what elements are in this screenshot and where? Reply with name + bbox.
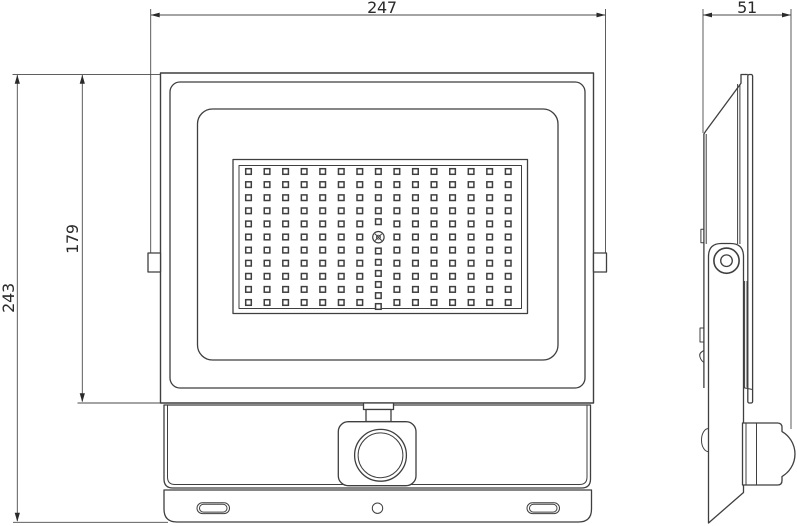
led-chip xyxy=(357,300,363,306)
led-chip xyxy=(264,287,270,293)
led-chip xyxy=(468,182,474,188)
led-chip xyxy=(487,234,493,240)
led-chip xyxy=(283,287,289,293)
led-chip xyxy=(320,182,326,188)
led-chip xyxy=(450,169,456,175)
arrowhead-bottom xyxy=(15,513,20,522)
sensor-stem-upper xyxy=(364,403,394,410)
floodlight-dimension-drawing: 247 51 243 179 xyxy=(0,0,797,526)
led-chip xyxy=(394,234,400,240)
led-chip xyxy=(338,300,344,306)
led-chip xyxy=(338,247,344,253)
arrowhead-bottom xyxy=(80,393,85,402)
led-chip xyxy=(246,221,252,227)
led-chip xyxy=(450,274,456,280)
led-chip xyxy=(413,169,419,175)
led-chip xyxy=(487,208,493,214)
led-chip xyxy=(246,260,252,266)
led-chip xyxy=(338,169,344,175)
led-chip xyxy=(246,195,252,201)
led-chip xyxy=(450,247,456,253)
led-chip xyxy=(320,208,326,214)
led-chip xyxy=(264,169,270,175)
led-chip xyxy=(431,169,437,175)
led-chip xyxy=(301,300,307,306)
led-chip xyxy=(320,287,326,293)
led-chip xyxy=(468,208,474,214)
led-chip xyxy=(338,274,344,280)
led-chip xyxy=(468,169,474,175)
led-chip xyxy=(301,182,307,188)
led-chip xyxy=(394,287,400,293)
led-chip xyxy=(505,221,511,227)
led-chip xyxy=(320,260,326,266)
led-chip xyxy=(413,234,419,240)
led-chip xyxy=(338,195,344,201)
led-chip xyxy=(320,221,326,227)
led-chip xyxy=(283,300,289,306)
led-chip xyxy=(246,300,252,306)
led-chip xyxy=(357,274,363,280)
led-chip xyxy=(413,287,419,293)
led-chip xyxy=(413,247,419,253)
led-chip xyxy=(338,260,344,266)
led-chip xyxy=(505,182,511,188)
dim-front-width-label: 247 xyxy=(367,0,397,17)
led-chip xyxy=(357,195,363,201)
led-chip xyxy=(376,271,382,277)
led-chip xyxy=(357,169,363,175)
led-chip xyxy=(487,274,493,280)
led-chip xyxy=(264,234,270,240)
led-chip xyxy=(283,234,289,240)
led-chip xyxy=(394,260,400,266)
led-chip xyxy=(283,274,289,280)
led-chip xyxy=(394,195,400,201)
led-chip xyxy=(450,260,456,266)
led-chip xyxy=(413,195,419,201)
led-chip xyxy=(450,195,456,201)
led-chip xyxy=(246,287,252,293)
sensor-stem-lower xyxy=(366,410,391,422)
led-chip xyxy=(431,260,437,266)
led-chip xyxy=(450,300,456,306)
led-chip xyxy=(301,208,307,214)
side-bracket-arm xyxy=(709,244,744,524)
led-chip xyxy=(264,182,270,188)
led-chip xyxy=(357,221,363,227)
side-view xyxy=(700,75,795,524)
led-chip xyxy=(338,182,344,188)
led-chip xyxy=(487,169,493,175)
led-chip xyxy=(413,208,419,214)
led-chip xyxy=(357,182,363,188)
led-chip xyxy=(338,287,344,293)
led-chip xyxy=(431,247,437,253)
mounting-slot-right-inner xyxy=(530,504,558,512)
led-chip xyxy=(283,169,289,175)
dim-total-height-label: 243 xyxy=(0,283,18,313)
led-chip xyxy=(357,234,363,240)
led-chip xyxy=(246,234,252,240)
led-chip xyxy=(301,221,307,227)
led-chip xyxy=(431,287,437,293)
led-chip xyxy=(450,287,456,293)
led-chip xyxy=(468,195,474,201)
led-chip xyxy=(505,195,511,201)
led-chip xyxy=(283,195,289,201)
led-chip xyxy=(338,221,344,227)
led-chip xyxy=(301,234,307,240)
led-chip xyxy=(264,195,270,201)
led-chip xyxy=(431,208,437,214)
led-chip xyxy=(413,260,419,266)
arrowhead-left xyxy=(703,13,712,18)
led-chip xyxy=(394,208,400,214)
led-chip xyxy=(431,300,437,306)
led-chip xyxy=(246,208,252,214)
led-chip xyxy=(413,300,419,306)
led-chip xyxy=(357,208,363,214)
led-chip xyxy=(431,234,437,240)
led-chip xyxy=(264,208,270,214)
led-chip xyxy=(487,287,493,293)
dim-side-depth-label: 51 xyxy=(737,0,757,17)
led-chip xyxy=(487,247,493,253)
front-view xyxy=(148,73,607,522)
mounting-hole-center xyxy=(372,503,382,513)
led-chip xyxy=(283,247,289,253)
led-chip xyxy=(394,169,400,175)
led-chip xyxy=(376,208,382,214)
led-chip xyxy=(505,234,511,240)
led-chip xyxy=(283,182,289,188)
led-chip xyxy=(450,182,456,188)
led-chip xyxy=(264,221,270,227)
hinge-tab-left xyxy=(148,253,161,272)
led-chip xyxy=(431,182,437,188)
arrowhead-right xyxy=(782,13,791,18)
led-chip xyxy=(376,195,382,201)
led-chip xyxy=(264,274,270,280)
led-chip xyxy=(301,287,307,293)
led-chip xyxy=(376,260,382,266)
side-glass-strip xyxy=(748,75,753,404)
dimension-body-height: 179 xyxy=(63,75,161,403)
led-chip xyxy=(376,182,382,188)
led-chip xyxy=(376,219,382,225)
led-chip xyxy=(505,247,511,253)
led-chip xyxy=(431,195,437,201)
arrowhead-right xyxy=(597,13,606,18)
led-chip xyxy=(283,221,289,227)
led-chip xyxy=(264,247,270,253)
technical-drawing-page: 247 51 243 179 xyxy=(0,0,797,526)
led-chip xyxy=(320,274,326,280)
led-chip xyxy=(468,287,474,293)
led-chip xyxy=(468,260,474,266)
led-chip xyxy=(394,221,400,227)
side-frame-edges xyxy=(738,84,740,244)
led-chip xyxy=(413,221,419,227)
led-chip xyxy=(246,274,252,280)
led-chip xyxy=(413,182,419,188)
led-chip xyxy=(246,169,252,175)
led-chip xyxy=(468,221,474,227)
dimension-total-height: 243 xyxy=(0,75,168,523)
led-chip xyxy=(394,182,400,188)
led-chip xyxy=(301,274,307,280)
led-chip xyxy=(505,274,511,280)
mounting-slot-left-inner xyxy=(200,504,228,512)
led-chip xyxy=(301,247,307,253)
side-sensor-housing xyxy=(743,423,795,485)
led-chip xyxy=(246,247,252,253)
led-chip xyxy=(450,234,456,240)
led-chip xyxy=(450,221,456,227)
led-chip xyxy=(376,169,382,175)
led-chip xyxy=(264,300,270,306)
sensor-housing xyxy=(338,422,416,486)
led-chip xyxy=(246,182,252,188)
led-chip xyxy=(505,260,511,266)
led-chip xyxy=(468,274,474,280)
led-chip xyxy=(376,282,382,288)
hinge-tab-right xyxy=(594,253,607,272)
led-chip xyxy=(283,208,289,214)
led-chip xyxy=(413,274,419,280)
led-chip xyxy=(394,247,400,253)
led-chip xyxy=(505,169,511,175)
led-chip xyxy=(320,247,326,253)
led-chip xyxy=(301,169,307,175)
led-chip xyxy=(468,234,474,240)
led-chip xyxy=(487,300,493,306)
led-chip xyxy=(376,293,382,299)
led-chip xyxy=(376,304,382,310)
led-chip xyxy=(376,248,382,254)
led-chip xyxy=(301,195,307,201)
led-chip xyxy=(320,234,326,240)
led-chip xyxy=(357,287,363,293)
led-chip xyxy=(487,195,493,201)
led-chip xyxy=(468,300,474,306)
led-chip xyxy=(338,234,344,240)
led-chip xyxy=(320,169,326,175)
led-chip xyxy=(487,221,493,227)
led-chip xyxy=(320,300,326,306)
led-chip xyxy=(505,287,511,293)
led-chip xyxy=(301,260,307,266)
led-chip xyxy=(394,274,400,280)
led-chip xyxy=(468,247,474,253)
led-chip xyxy=(394,300,400,306)
led-chip xyxy=(487,182,493,188)
led-chip xyxy=(505,300,511,306)
led-chip xyxy=(505,208,511,214)
dim-body-height-label: 179 xyxy=(63,224,82,254)
arrowhead-top xyxy=(15,75,20,84)
arrowhead-left xyxy=(151,13,160,18)
side-bracket-knuckle xyxy=(702,429,709,452)
led-chip xyxy=(450,208,456,214)
led-chip xyxy=(320,195,326,201)
led-chip xyxy=(431,221,437,227)
led-chip xyxy=(283,260,289,266)
led-chip xyxy=(357,247,363,253)
led-chip xyxy=(338,208,344,214)
led-chip xyxy=(264,260,270,266)
led-chip xyxy=(487,260,493,266)
arrowhead-top xyxy=(80,75,85,84)
led-chip xyxy=(431,274,437,280)
led-chip xyxy=(357,260,363,266)
